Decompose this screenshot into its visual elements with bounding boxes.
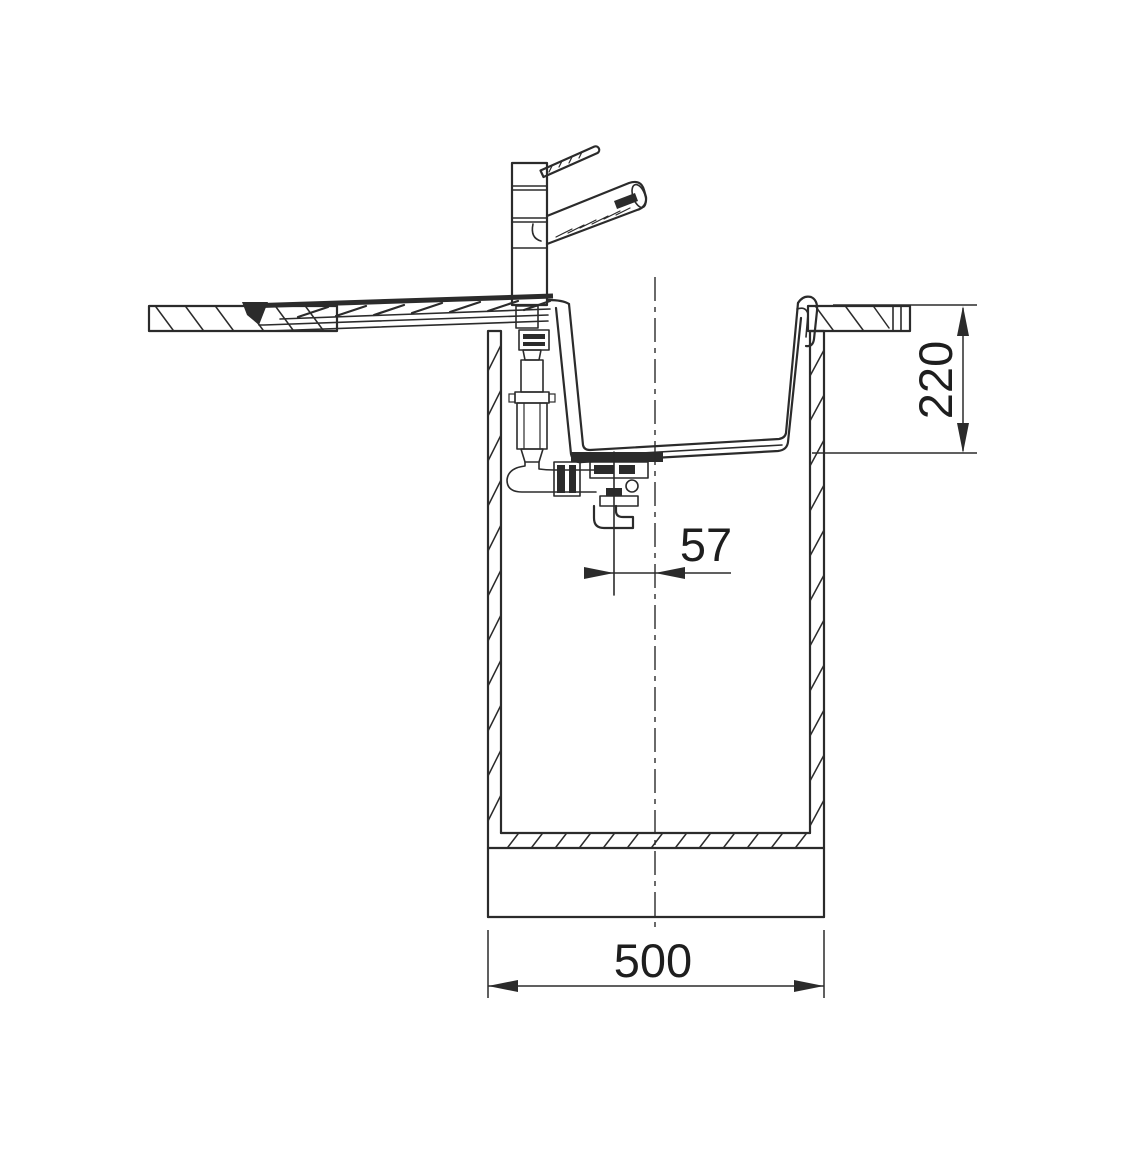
drainboard (242, 296, 553, 331)
overflow-body (517, 403, 547, 449)
bowl-rim-left (548, 300, 569, 304)
overflow-elbow (507, 462, 596, 492)
overflow-coupling-tab-right (549, 394, 555, 402)
overflow-neck (523, 350, 541, 360)
faucet-body-joints (512, 186, 547, 248)
bowl-interior (569, 303, 798, 450)
bowl (548, 297, 817, 463)
drainboard-edge-clamp (242, 302, 268, 325)
faucet (512, 146, 649, 305)
sink-section-drawing: 220 57 500 (0, 0, 1128, 1150)
overflow-stub-bands (523, 334, 545, 346)
cabinet-right-wall-hatch (810, 350, 824, 826)
dimension-220-label: 220 (909, 341, 962, 419)
dimension-cabinet-width: 500 (488, 930, 824, 998)
trap-inlet (600, 496, 638, 506)
drainboard-underside (259, 309, 550, 331)
overflow-taper (521, 449, 543, 462)
dimension-500-label: 500 (614, 934, 692, 987)
drain-assembly (571, 452, 663, 528)
dimension-bowl-depth: 220 (812, 305, 977, 453)
countertop-right-hatch (816, 307, 889, 330)
countertop-right-outline (808, 306, 910, 331)
overflow-stub (519, 330, 549, 350)
cabinet-walls (488, 331, 824, 917)
countertop-right (808, 306, 910, 331)
faucet-body (512, 163, 547, 305)
strainer-flange (571, 452, 663, 462)
cabinet-bottom-hatch (508, 834, 806, 847)
overflow-upper-pipe (521, 360, 543, 392)
overflow-coupling (515, 392, 549, 403)
cabinet (488, 331, 824, 917)
dimension-57-label: 57 (680, 518, 732, 571)
faucet-spout-base (532, 224, 541, 241)
faucet-spout-shading (556, 208, 630, 237)
countertop-right-edge-lines (893, 306, 901, 331)
overflow-coupling-tab-left (509, 394, 515, 402)
overflow-pipe (507, 330, 596, 496)
drawing-root: 220 57 500 (149, 146, 977, 998)
faucet-aerator (614, 193, 638, 209)
overflow-body-lines (524, 403, 540, 449)
cabinet-left-wall-hatch (488, 345, 501, 821)
drain-port (626, 480, 638, 492)
